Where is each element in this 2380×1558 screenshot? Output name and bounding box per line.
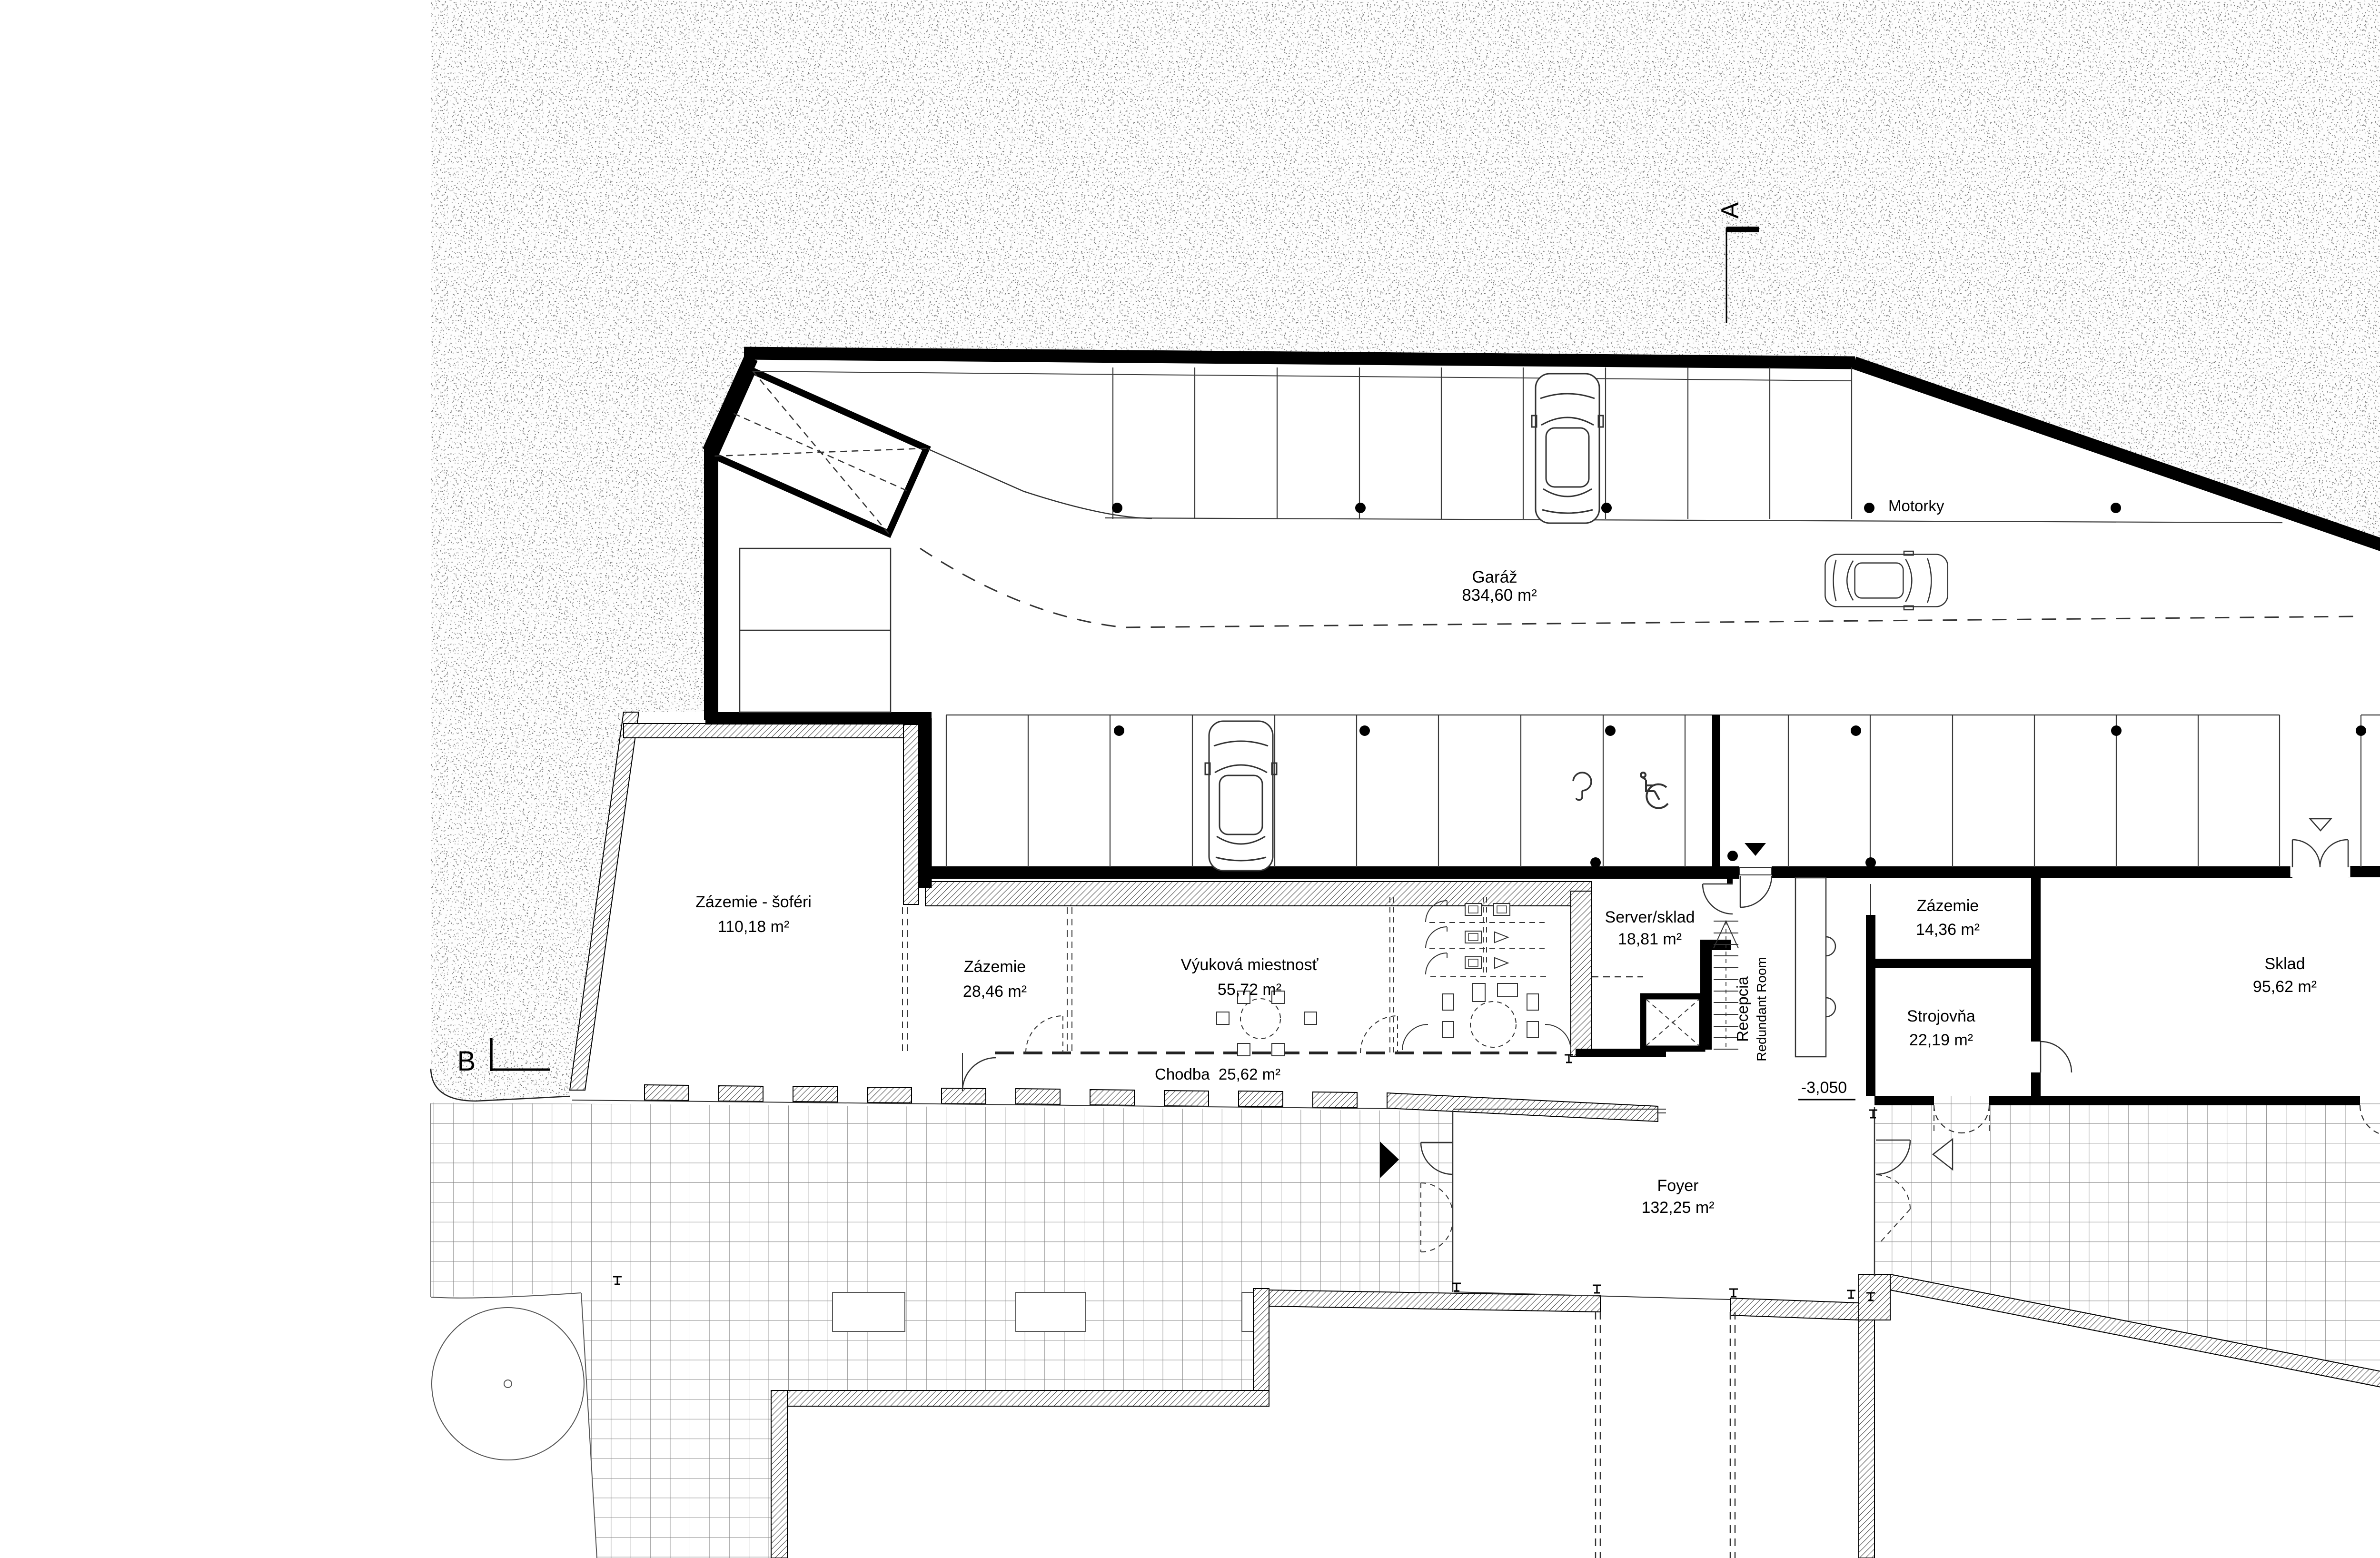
svg-text:Zázemie: Zázemie	[1917, 897, 1979, 915]
svg-text:-3,050: -3,050	[1801, 1079, 1847, 1097]
svg-text:22,19 m²: 22,19 m²	[1909, 1031, 1973, 1049]
svg-text:Motorky: Motorky	[1888, 497, 1944, 515]
svg-text:Sklad: Sklad	[2264, 955, 2305, 973]
svg-text:B: B	[457, 1046, 476, 1077]
svg-text:Foyer: Foyer	[1657, 1177, 1699, 1195]
svg-text:Výuková miestnosť: Výuková miestnosť	[1181, 956, 1319, 974]
svg-text:132,25 m²: 132,25 m²	[1641, 1199, 1714, 1217]
svg-text:Strojovňa: Strojovňa	[1907, 1007, 1975, 1025]
svg-text:Chodba 25,62 m²: Chodba 25,62 m²	[1155, 1065, 1280, 1083]
svg-text:28,46 m²: 28,46 m²	[963, 982, 1027, 1001]
svg-text:14,36 m²: 14,36 m²	[1916, 921, 1980, 939]
svg-text:834,60 m²: 834,60 m²	[1462, 586, 1537, 605]
svg-text:Server/sklad: Server/sklad	[1605, 908, 1695, 926]
svg-text:Recepcia: Recepcia	[1734, 976, 1751, 1042]
svg-text:Zázemie - šoféri: Zázemie - šoféri	[695, 893, 812, 911]
svg-text:Zázemie: Zázemie	[964, 958, 1026, 976]
svg-text:A: A	[1716, 202, 1744, 218]
svg-text:18,81 m²: 18,81 m²	[1618, 930, 1682, 948]
svg-text:Garáž: Garáž	[1472, 568, 1517, 586]
svg-text:110,18 m²: 110,18 m²	[718, 918, 790, 936]
svg-text:55,72 m²: 55,72 m²	[1218, 981, 1281, 999]
svg-text:95,62 m²: 95,62 m²	[2253, 978, 2317, 996]
svg-text:Redundant Room: Redundant Room	[1754, 957, 1769, 1061]
